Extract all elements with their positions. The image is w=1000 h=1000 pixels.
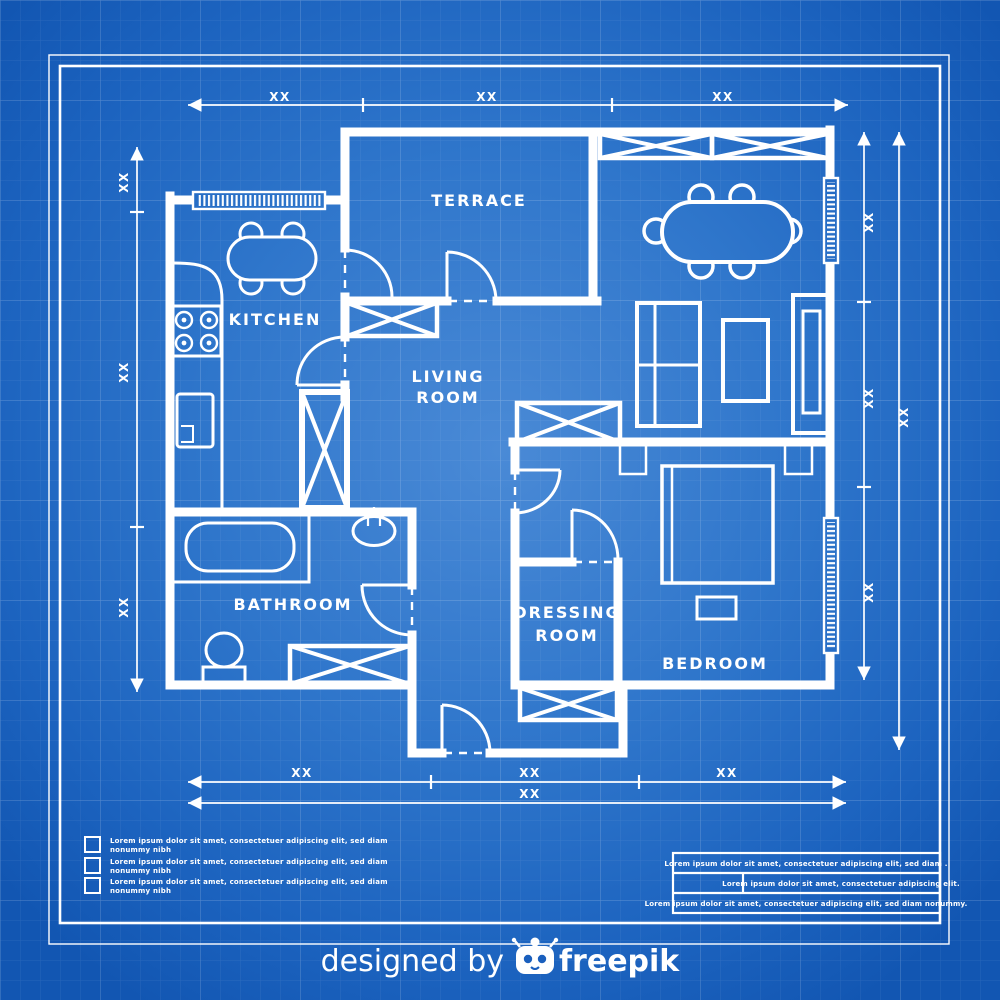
- legend-text-line2: nonummy nibh: [110, 846, 171, 854]
- dimension-label: XX: [476, 90, 498, 104]
- window-living-right: [824, 178, 838, 263]
- dimension-label: XX: [519, 766, 541, 780]
- dimension-label: XX: [862, 387, 876, 409]
- dimension-label: XX: [519, 787, 541, 801]
- dimension-label: XX: [716, 766, 738, 780]
- room-label-living-line1: LIVING: [411, 367, 484, 386]
- legend-text-line2: nonummy nibh: [110, 887, 171, 895]
- blueprint-floor-plan: XX XX XX XX XX XX XX XX XX XX XX XX XX X…: [0, 0, 1000, 1000]
- dimension-label: XX: [117, 171, 131, 193]
- title-block-row2: Lorem ipsum dolor sit amet, consectetuer…: [722, 880, 960, 888]
- blueprint-page: XX XX XX XX XX XX XX XX XX XX XX XX XX X…: [0, 0, 1000, 1000]
- room-label-dressing-line1: DRESSING: [513, 603, 620, 622]
- title-block-row3: Lorem ipsum dolor sit amet, consectetuer…: [645, 900, 968, 908]
- brand-text: freepik: [559, 944, 680, 979]
- window-bedroom-right: [824, 518, 838, 653]
- room-label-bedroom: BEDROOM: [662, 654, 768, 673]
- room-label-bathroom: BATHROOM: [233, 595, 352, 614]
- dimension-label: XX: [117, 361, 131, 383]
- legend-text-line1: Lorem ipsum dolor sit amet, consectetuer…: [110, 858, 388, 866]
- room-label-terrace: TERRACE: [431, 191, 527, 210]
- designed-by-text: designed by: [321, 944, 504, 979]
- room-label-dressing-line2: ROOM: [535, 626, 598, 645]
- legend-text-line2: nonummy nibh: [110, 867, 171, 875]
- room-label-living-line2: ROOM: [416, 388, 479, 407]
- dimension-label: XX: [862, 581, 876, 603]
- room-label-kitchen: KITCHEN: [229, 310, 322, 329]
- dimension-label: XX: [117, 596, 131, 618]
- dimension-label: XX: [712, 90, 734, 104]
- dimension-label: XX: [291, 766, 313, 780]
- window-kitchen: [193, 192, 325, 209]
- toilet: [203, 633, 245, 682]
- footer-credit: designed by freepik: [321, 938, 681, 980]
- dimension-label: XX: [269, 90, 291, 104]
- title-block-row1: Lorem ipsum dolor sit amet, consectetuer…: [664, 860, 947, 868]
- legend-text-line1: Lorem ipsum dolor sit amet, consectetuer…: [110, 837, 388, 845]
- legend-text-line1: Lorem ipsum dolor sit amet, consectetuer…: [110, 878, 388, 886]
- dimension-label: XX: [862, 211, 876, 233]
- dimension-label: XX: [897, 406, 911, 428]
